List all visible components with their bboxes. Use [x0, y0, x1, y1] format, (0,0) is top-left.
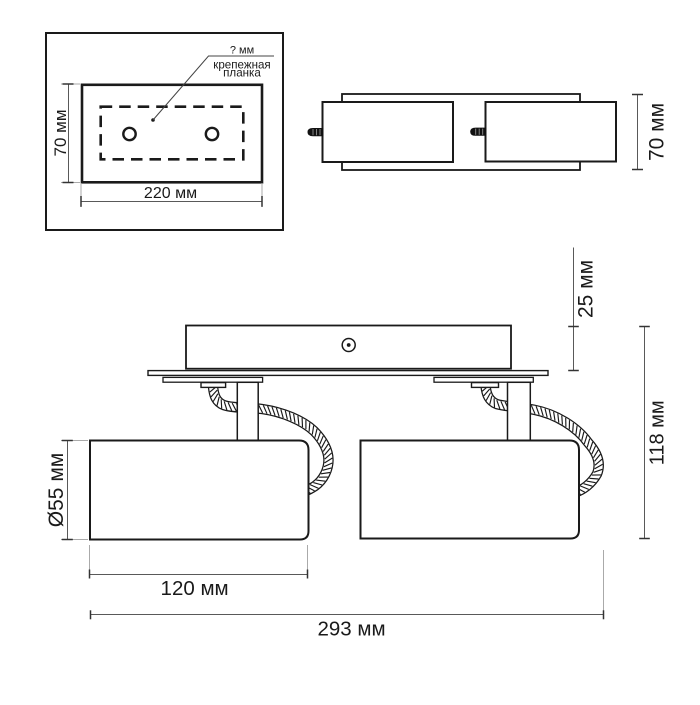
svg-text:220 мм: 220 мм [144, 185, 197, 202]
svg-text:70 мм: 70 мм [646, 103, 669, 161]
svg-text:? мм: ? мм [230, 45, 254, 57]
svg-text:120 мм: 120 мм [161, 577, 229, 600]
svg-text:293 мм: 293 мм [317, 618, 385, 641]
svg-text:70 мм: 70 мм [51, 109, 70, 156]
svg-text:118 мм: 118 мм [647, 400, 669, 465]
svg-text:Ø55 мм: Ø55 мм [45, 453, 68, 527]
svg-text:планка: планка [223, 67, 261, 80]
svg-text:25 мм: 25 мм [575, 260, 598, 318]
